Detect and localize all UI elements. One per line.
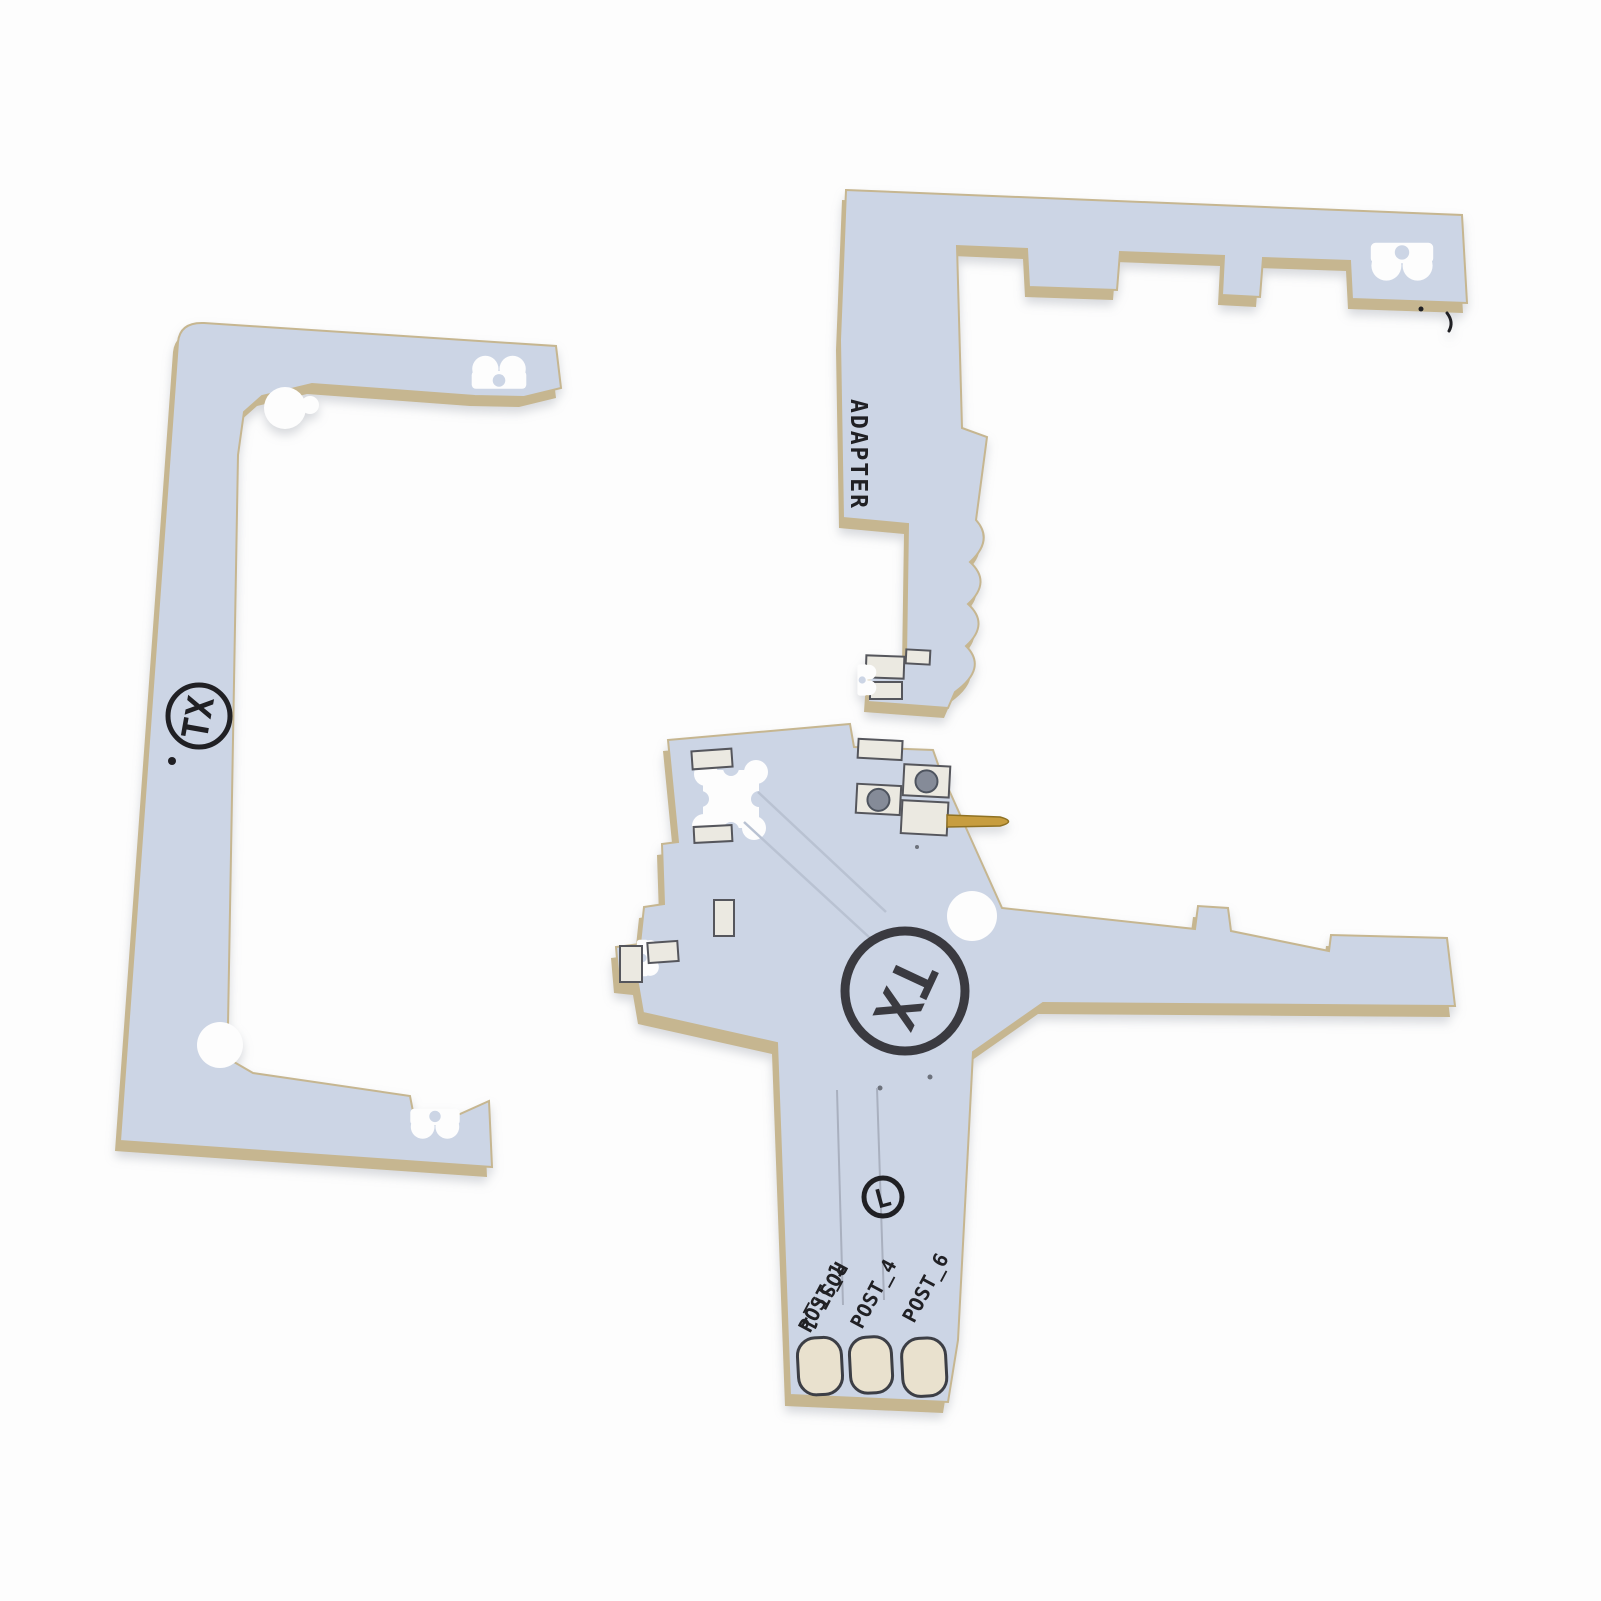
ink-mark — [1447, 313, 1451, 331]
round-notch-cutout — [264, 387, 306, 429]
solder-pad — [714, 900, 734, 936]
post-pad — [849, 1336, 894, 1394]
plated-hole — [867, 788, 890, 811]
post-pad-row — [797, 1331, 948, 1403]
round-notch-cutout — [197, 1022, 243, 1068]
adapter-board: ADAPTER — [836, 190, 1467, 718]
speck — [915, 845, 919, 849]
round-notch-cutout — [947, 891, 997, 941]
round-notch-cutout — [301, 396, 319, 414]
fiducial-dot — [1419, 307, 1424, 312]
solder-pad — [647, 941, 678, 963]
solder-pad — [620, 946, 642, 982]
solder-pad — [694, 825, 733, 843]
speck — [878, 1086, 883, 1091]
speck — [928, 1075, 933, 1080]
solder-pad — [901, 800, 949, 835]
left-frame-board: TX — [115, 323, 561, 1177]
adapter-label: ADAPTER — [845, 399, 871, 510]
page: { "scene": { "description": "Two light-b… — [0, 0, 1601, 1601]
main-board: TX L POST_1 POST_4 POST_6 POST_1 — [611, 724, 1455, 1413]
post-pad — [901, 1337, 948, 1397]
solder-pad — [691, 749, 732, 770]
solder-pad — [906, 649, 931, 664]
tx-logo-text: TX — [175, 693, 223, 743]
gold-pin — [947, 815, 1009, 827]
post-pad — [797, 1337, 844, 1396]
fiducial-dot — [168, 757, 176, 765]
plated-hole — [915, 770, 938, 793]
solder-pad — [858, 739, 903, 760]
product-photo: TX ADAPTER — [0, 0, 1601, 1601]
